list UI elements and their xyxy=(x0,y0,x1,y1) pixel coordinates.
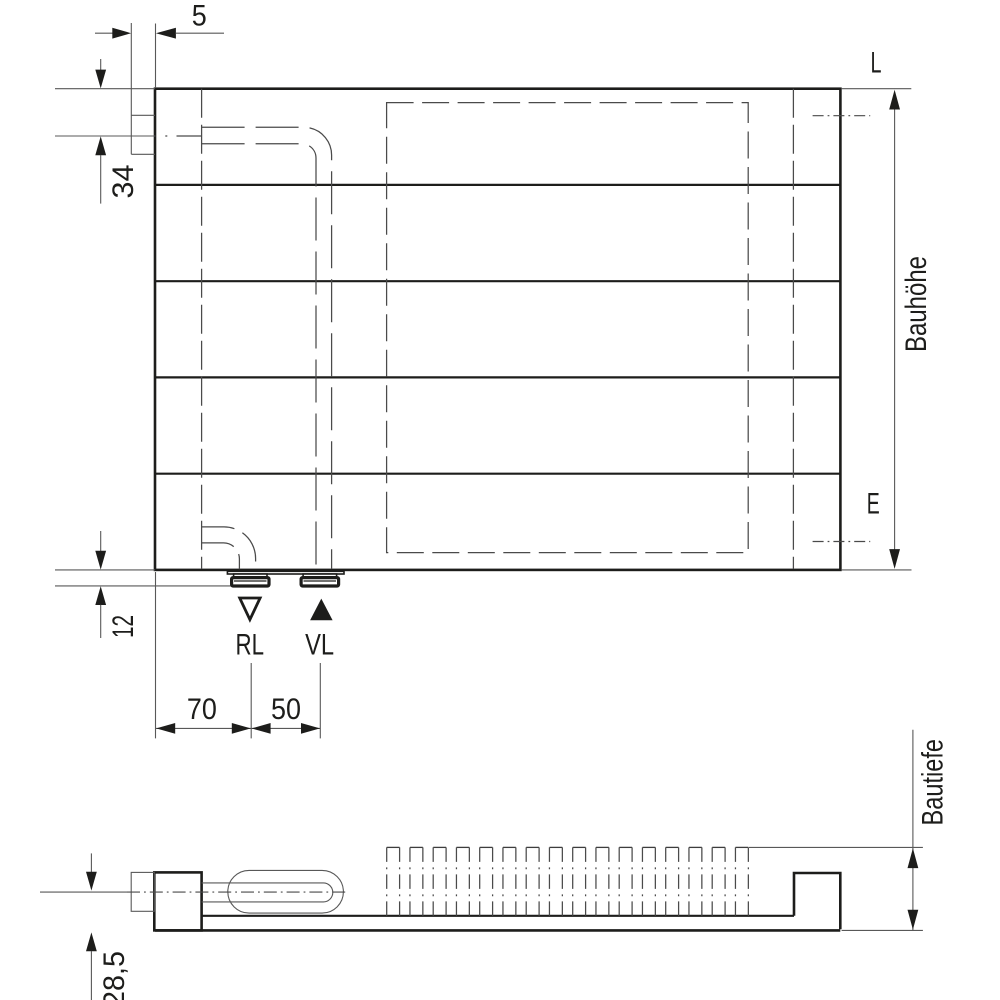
svg-text:50: 50 xyxy=(271,693,301,726)
svg-text:28,5: 28,5 xyxy=(98,951,131,1000)
svg-text:70: 70 xyxy=(187,693,217,726)
svg-text:VL: VL xyxy=(305,629,334,662)
svg-text:34: 34 xyxy=(107,165,140,199)
svg-text:L: L xyxy=(871,47,882,80)
svg-text:Bauhöhe: Bauhöhe xyxy=(900,256,933,352)
svg-text:Bautiefe: Bautiefe xyxy=(916,739,949,826)
svg-text:RL: RL xyxy=(236,629,265,662)
svg-text:E: E xyxy=(867,488,880,521)
svg-text:5: 5 xyxy=(192,0,207,33)
svg-text:12: 12 xyxy=(107,615,140,638)
